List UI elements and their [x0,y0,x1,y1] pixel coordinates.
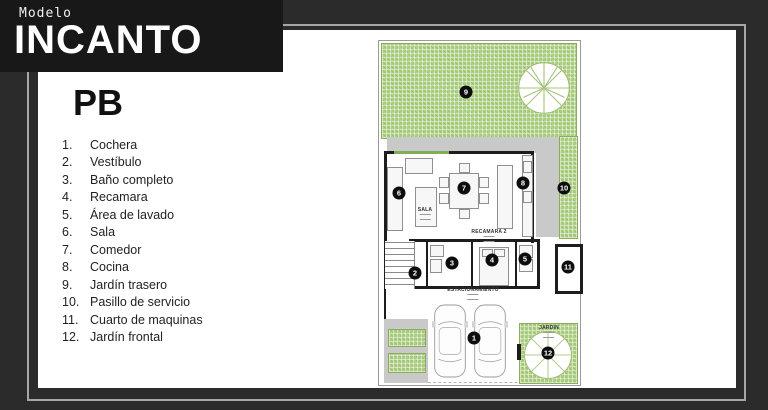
room-label-estacionamiento: ESTACIONAMIENTO [447,287,498,300]
chair [479,177,489,188]
chair [459,163,470,173]
room-label-sala: SALA [418,207,432,220]
wall-right-lower [537,239,540,289]
plan-marker-12: 12 [542,347,555,360]
plan-marker-4: 4 [486,254,499,267]
legend-item-2: 2.Vestíbulo [62,154,203,172]
room-label-recamara-2: RECAMARA 2 [471,229,506,242]
plan-marker-2: 2 [409,267,422,280]
plan-marker-7: 7 [458,182,471,195]
room-label-jardin: JARDIN [539,325,559,338]
legend-item-label: Jardín trasero [90,278,167,292]
legend-item-6: 6.Sala [62,224,203,242]
wall-bath-left [426,241,428,287]
legend-item-label: Jardín frontal [90,330,163,344]
kitchen-appliance [523,191,532,203]
plan-marker-6: 6 [393,187,406,200]
legend-item-number: 7. [62,243,86,257]
legend-item-11: 11.Cuarto de maquinas [62,311,203,329]
legend-item-number: 4. [62,190,86,204]
plan-marker-3: 3 [446,257,459,270]
sofa-short [405,158,433,174]
planter [388,353,426,373]
legend-item-label: Vestíbulo [90,155,141,169]
model-title: INCANTO [14,18,202,63]
wall-bath-right [471,241,473,287]
legend-item-label: Cocina [90,260,129,274]
slide: Modelo INCANTO PB 1.Cochera2.Vestíbulo3.… [0,0,768,410]
kitchen-island [497,165,513,229]
legend-item-label: Baño completo [90,173,173,187]
floor-plan: SALARECAMARA 2ESTACIONAMIENTOJARDIN 1234… [378,40,581,386]
chair [479,193,489,204]
legend-item-label: Cochera [90,138,137,152]
legend-item-number: 9. [62,278,86,292]
legend-item-3: 3.Baño completo [62,171,203,189]
legend-item-label: Área de lavado [90,208,174,222]
legend-item-label: Cuarto de maquinas [90,313,203,327]
legend-item-number: 8. [62,260,86,274]
entry-walk [384,289,430,319]
room-legend: 1.Cochera2.Vestíbulo3.Baño completo4.Rec… [62,136,203,346]
plan-marker-9: 9 [460,86,473,99]
legend-item-label: Recamara [90,190,148,204]
plan-marker-11: 11 [562,261,575,274]
plan-marker-1: 1 [468,332,481,345]
chair [439,177,449,188]
chair [439,193,449,204]
legend-item-number: 6. [62,225,86,239]
legend-item-5: 5.Área de lavado [62,206,203,224]
legend-item-number: 2. [62,155,86,169]
toilet [430,259,442,273]
plan-marker-8: 8 [517,177,530,190]
tree-icon [516,60,572,116]
chair [459,209,470,219]
legend-item-number: 10. [62,295,86,309]
legend-item-number: 12. [62,330,86,344]
planter [388,329,426,347]
car-icon [432,303,468,379]
legend-item-label: Pasillo de servicio [90,295,190,309]
garden-wall-stub [517,344,521,360]
service-path [536,153,560,237]
legend-item-label: Comedor [90,243,141,257]
kitchen-appliance [523,161,532,173]
legend-item-4: 4.Recamara [62,189,203,207]
wall-laundry [515,241,517,287]
legend-item-1: 1.Cochera [62,136,203,154]
legend-item-number: 3. [62,173,86,187]
legend-item-number: 1. [62,138,86,152]
sliding-door [394,151,449,154]
legend-item-8: 8.Cocina [62,259,203,277]
plan-marker-10: 10 [558,182,571,195]
bath-sink [430,245,444,257]
legend-item-9: 9.Jardín trasero [62,276,203,294]
legend-item-10: 10.Pasillo de servicio [62,294,203,312]
legend-item-label: Sala [90,225,115,239]
model-banner: Modelo INCANTO [0,0,283,72]
legend-item-number: 5. [62,208,86,222]
legend-item-7: 7.Comedor [62,241,203,259]
floor-title: PB [73,82,123,124]
plan-marker-5: 5 [519,253,532,266]
legend-item-number: 11. [62,313,86,327]
legend-item-12: 12.Jardín frontal [62,329,203,347]
